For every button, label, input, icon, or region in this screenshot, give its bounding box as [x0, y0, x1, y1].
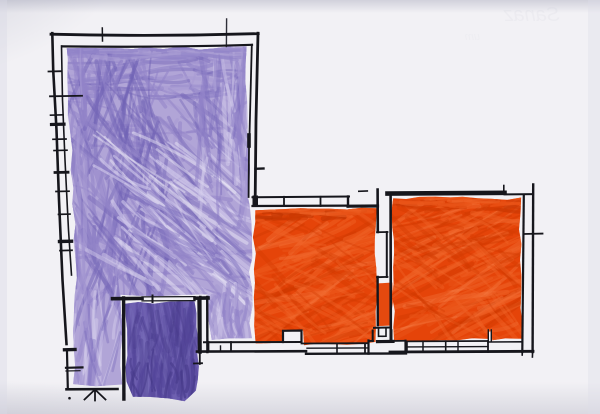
- svg-text:um: um: [465, 31, 480, 43]
- svg-text:Sanaz: Sanaz: [503, 4, 560, 26]
